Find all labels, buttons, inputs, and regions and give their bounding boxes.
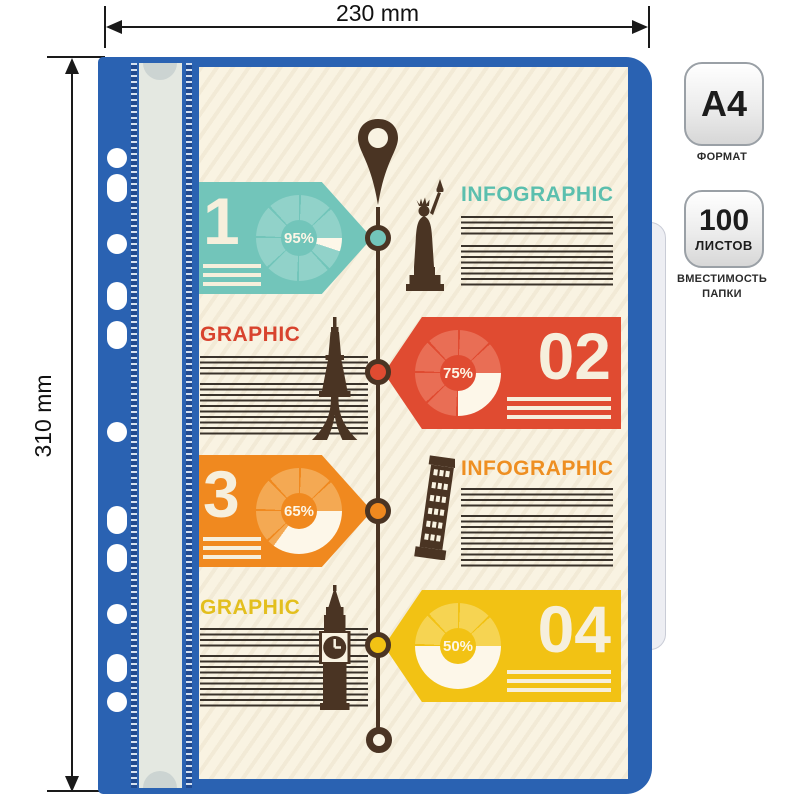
format-value: A4	[701, 86, 747, 122]
cover-artwork: 1 95%	[199, 67, 628, 779]
pisa-tower-icon	[401, 454, 455, 560]
perforation-line	[186, 63, 192, 788]
text-lines-block	[461, 245, 613, 289]
width-tick-left	[104, 6, 106, 48]
capacity-value: 100	[699, 206, 749, 236]
tag-01: 1 95%	[199, 182, 372, 294]
capacity-caption: ВМЕСТИМОСТЬ ПАПКИ	[660, 272, 784, 302]
punch-hole	[107, 654, 127, 682]
tag-knob	[365, 632, 391, 658]
donut-chart: 95%	[256, 195, 342, 281]
punch-hole	[107, 506, 127, 534]
tag-caption-lines	[203, 264, 261, 286]
donut-hole: 50%	[440, 628, 476, 664]
donut-hole: 75%	[440, 355, 476, 391]
donut-chart: 65%	[256, 468, 342, 554]
thumb-notch-top	[143, 63, 177, 80]
arrowhead-up-icon	[65, 58, 79, 74]
donut-percent: 65%	[284, 503, 314, 520]
tag-knob	[365, 498, 391, 524]
width-dimension-line	[114, 26, 640, 28]
punch-hole	[107, 544, 127, 572]
arrowhead-left-icon	[106, 20, 122, 34]
height-dimension-label: 310 mm	[30, 356, 54, 476]
tag-number: 1	[203, 188, 240, 254]
capacity-unit: ЛИСТОВ	[695, 238, 753, 253]
height-dimension-line	[71, 72, 73, 780]
punch-hole	[107, 148, 127, 168]
height-tick-top	[47, 56, 105, 58]
timeline-end-ring-icon	[366, 727, 392, 753]
width-dimension-label: 230 mm	[105, 0, 650, 27]
tag-caption-lines	[507, 670, 611, 692]
donut-percent: 95%	[284, 230, 314, 247]
capacity-badge: 100 ЛИСТОВ	[684, 190, 764, 268]
perforation-line	[131, 63, 137, 788]
tag-caption-lines	[203, 537, 261, 559]
infographic-heading: GRAPHIC	[200, 323, 300, 347]
statue-of-liberty-icon	[403, 179, 447, 291]
clamp-bar	[139, 63, 182, 788]
tag-caption-lines	[507, 397, 611, 419]
tag-04: 04 50%	[384, 590, 621, 702]
donut-percent: 50%	[443, 638, 473, 655]
tag-number: 02	[538, 323, 611, 389]
infographic-heading: INFOGRAPHIC	[461, 457, 614, 481]
punch-hole	[107, 234, 127, 254]
tag-knob	[365, 359, 391, 385]
tag-number: 3	[203, 461, 240, 527]
big-ben-icon	[311, 585, 358, 710]
donut-percent: 75%	[443, 365, 473, 382]
format-caption: ФОРМАТ	[660, 150, 784, 165]
punch-hole	[107, 422, 127, 442]
width-tick-right	[648, 6, 650, 48]
arrowhead-right-icon	[632, 20, 648, 34]
folder: 1 95%	[98, 57, 652, 794]
donut-hole: 65%	[281, 493, 317, 529]
text-lines-block	[461, 216, 613, 238]
thumb-notch-bottom	[143, 771, 177, 788]
punch-hole	[107, 282, 127, 310]
infographic-heading: INFOGRAPHIC	[461, 183, 614, 207]
donut-hole: 95%	[281, 220, 317, 256]
format-badge: A4	[684, 62, 764, 146]
text-lines-block	[461, 515, 613, 569]
height-tick-bottom	[47, 790, 105, 792]
tag-knob	[365, 225, 391, 251]
punch-hole	[107, 174, 127, 202]
donut-chart: 75%	[415, 330, 501, 416]
infographic-heading: GRAPHIC	[200, 596, 300, 620]
punch-hole	[107, 692, 127, 712]
tag-03: 3 65%	[199, 455, 372, 567]
tag-02: 02 75%	[384, 317, 621, 429]
text-lines-block	[461, 488, 613, 508]
donut-chart: 50%	[415, 603, 501, 689]
punch-hole	[107, 604, 127, 624]
product-card: 230 mm 310 mm A4 ФОРМАТ 100 ЛИСТОВ ВМЕСТ…	[0, 0, 800, 800]
map-pin-icon	[356, 117, 400, 207]
eiffel-tower-icon	[311, 317, 358, 442]
punch-hole	[107, 321, 127, 349]
tag-number: 04	[538, 596, 611, 662]
